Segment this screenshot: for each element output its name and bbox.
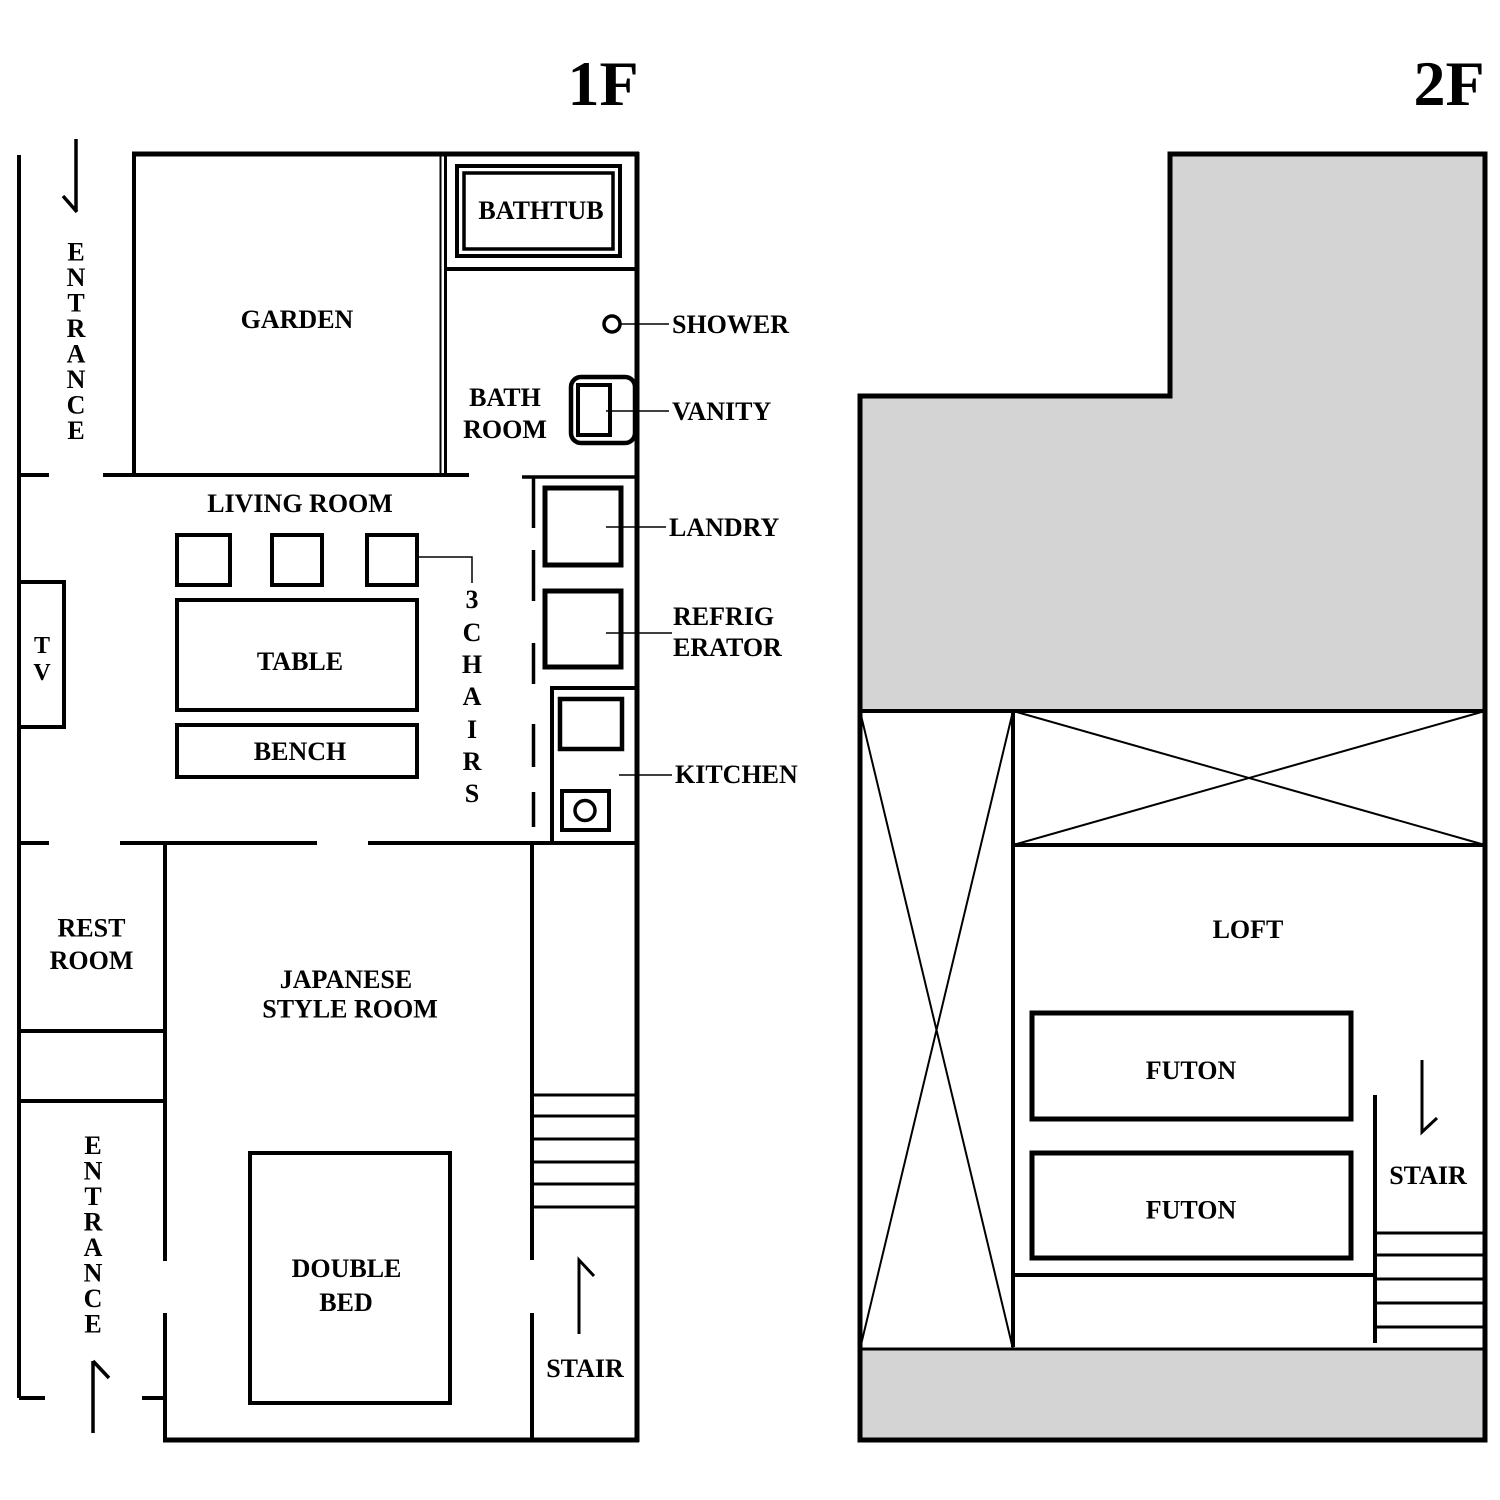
svg-text:FUTON: FUTON [1146, 1196, 1237, 1225]
svg-text:T: T [34, 633, 50, 659]
svg-text:SHOWER: SHOWER [672, 310, 789, 339]
svg-text:LIVING ROOM: LIVING ROOM [207, 489, 393, 518]
svg-text:H: H [462, 650, 482, 679]
svg-text:BENCH: BENCH [254, 737, 346, 766]
svg-text:TABLE: TABLE [257, 647, 343, 676]
svg-text:JAPANESE: JAPANESE [280, 965, 412, 994]
svg-text:BATHTUB: BATHTUB [478, 196, 603, 225]
svg-text:I: I [467, 715, 477, 744]
svg-text:3: 3 [466, 585, 479, 614]
svg-text:STAIR: STAIR [1389, 1161, 1467, 1190]
svg-text:A: A [463, 682, 482, 711]
svg-text:STAIR: STAIR [546, 1354, 624, 1383]
svg-text:V: V [33, 660, 51, 686]
svg-text:2F: 2F [1413, 48, 1484, 119]
svg-text:LANDRY: LANDRY [669, 513, 780, 542]
svg-text:E: E [84, 1310, 101, 1339]
svg-text:E: E [67, 416, 84, 445]
svg-text:FUTON: FUTON [1146, 1056, 1237, 1085]
svg-text:ROOM: ROOM [463, 415, 547, 444]
svg-text:C: C [463, 618, 482, 647]
svg-text:DOUBLE: DOUBLE [292, 1254, 402, 1283]
svg-text:REFRIG: REFRIG [673, 602, 774, 631]
svg-text:BATH: BATH [469, 383, 541, 412]
svg-text:KITCHEN: KITCHEN [675, 760, 798, 789]
svg-text:STYLE ROOM: STYLE ROOM [262, 995, 438, 1024]
svg-text:LOFT: LOFT [1213, 915, 1284, 944]
svg-text:VANITY: VANITY [672, 397, 771, 426]
svg-text:1F: 1F [567, 48, 638, 119]
svg-text:BED: BED [319, 1288, 372, 1317]
svg-text:GARDEN: GARDEN [241, 305, 354, 334]
svg-text:REST: REST [58, 914, 126, 943]
svg-text:ROOM: ROOM [50, 946, 134, 975]
svg-text:ERATOR: ERATOR [673, 633, 782, 662]
svg-text:S: S [465, 779, 479, 808]
svg-text:R: R [463, 747, 482, 776]
